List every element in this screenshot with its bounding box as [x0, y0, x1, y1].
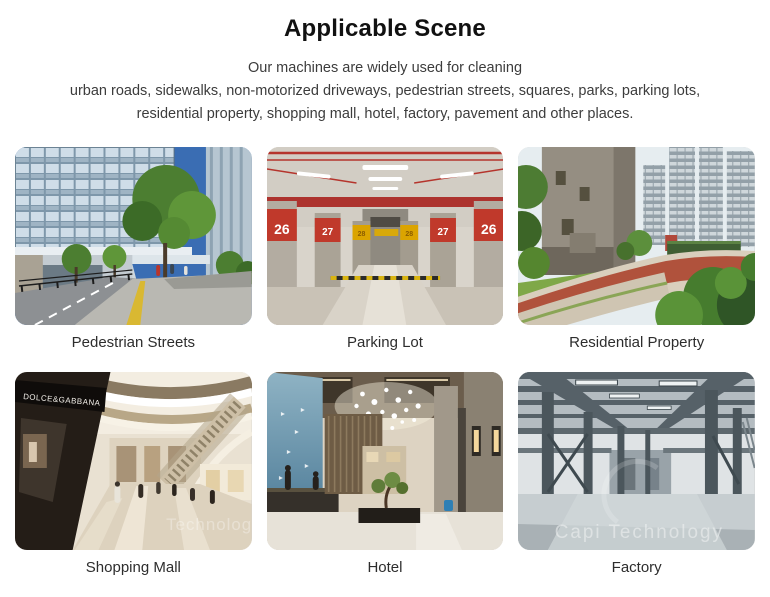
pedestrian-streets-photo: [15, 147, 252, 325]
applicable-scene-section: Applicable Scene Our machines are widely…: [0, 0, 770, 594]
hotel-illustration: [267, 372, 504, 550]
description-line-2: urban roads, sidewalks, non-motorized dr…: [0, 80, 770, 103]
scene-card-pedestrian-streets: Pedestrian Streets: [15, 147, 252, 372]
watermark-text: Technology: [166, 515, 251, 534]
scene-caption: Pedestrian Streets: [15, 334, 252, 351]
parking-pillar-number: 27: [322, 227, 334, 238]
scene-card-parking-lot: 26 27 28 28 27: [267, 147, 504, 372]
description-line-3: residential property, shopping mall, hot…: [0, 103, 770, 126]
right-columns: [434, 372, 504, 514]
pedestrian-streets-illustration: [15, 147, 252, 325]
factory-photo: Capi Technology: [518, 372, 755, 550]
parking-pillar-number: 28: [405, 231, 413, 238]
scene-caption: Shopping Mall: [15, 559, 252, 576]
scene-card-residential-property: Residential Property: [518, 147, 755, 372]
parking-lot-illustration: 26 27 28 28 27: [267, 147, 504, 325]
parking-pillar-number: 26: [481, 221, 497, 237]
scene-caption: Parking Lot: [267, 334, 504, 351]
parking-pillar-number: 27: [437, 227, 449, 238]
residential-property-photo: [518, 147, 755, 325]
residential-property-illustration: [518, 147, 755, 325]
hotel-photo: [267, 372, 504, 550]
page-title: Applicable Scene: [0, 0, 770, 43]
scene-card-hotel: Hotel: [267, 372, 504, 597]
scene-card-factory: Capi Technology Factory: [518, 372, 755, 597]
apartment-building: [542, 147, 635, 279]
parking-lot-photo: 26 27 28 28 27: [267, 147, 504, 325]
shopping-mall-photo: DOLCE&GABBANA Technolo: [15, 372, 252, 550]
scene-grid: Pedestrian Streets: [0, 147, 770, 597]
parking-pillar-number: 26: [274, 221, 290, 237]
scene-caption: Hotel: [267, 559, 504, 576]
factory-illustration: Capi Technology: [518, 372, 755, 550]
scene-caption: Factory: [518, 559, 755, 576]
scene-caption: Residential Property: [518, 334, 755, 351]
shopping-mall-illustration: DOLCE&GABBANA Technolo: [15, 372, 252, 550]
watermark-text: Capi Technology: [555, 522, 724, 543]
parking-pillar-number: 28: [357, 231, 365, 238]
section-description: Our machines are widely used for cleanin…: [0, 57, 770, 126]
scene-card-shopping-mall: DOLCE&GABBANA Technolo: [15, 372, 252, 597]
blue-bin: [444, 500, 453, 511]
description-line-1: Our machines are widely used for cleanin…: [0, 57, 770, 80]
